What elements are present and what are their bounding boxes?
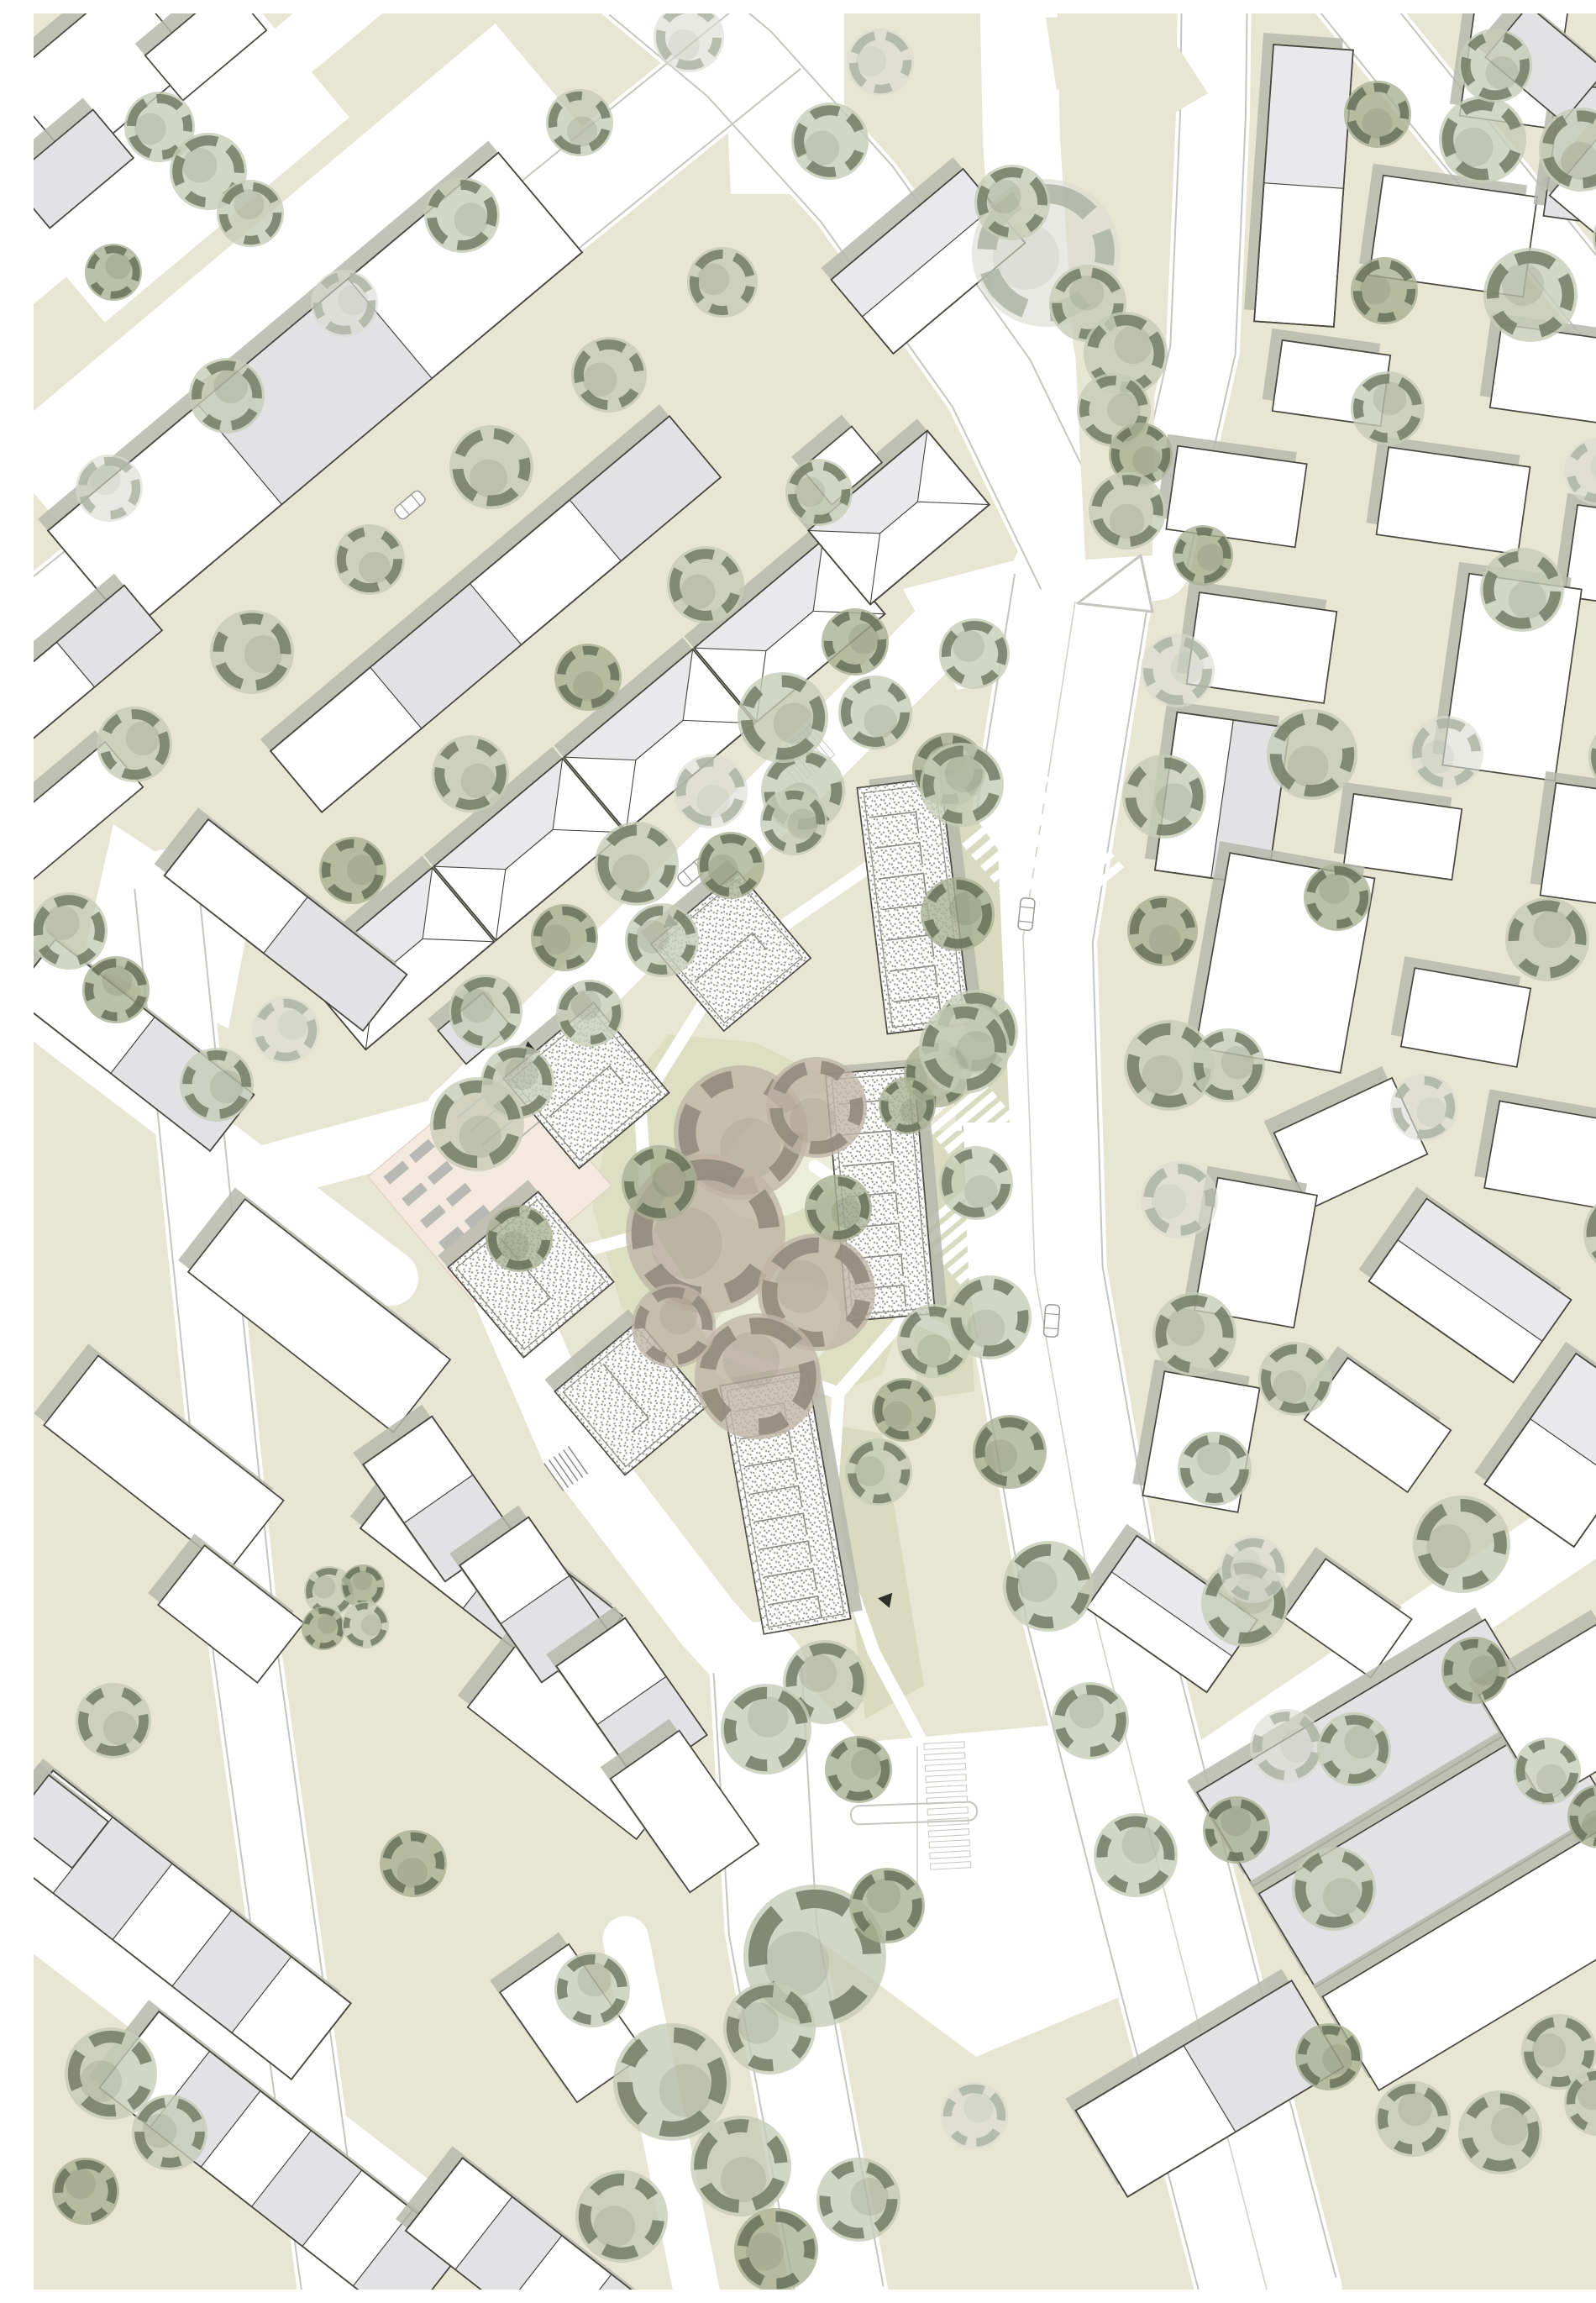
tree-canopy (1483, 248, 1578, 342)
car (1018, 897, 1036, 931)
car-body (1043, 1304, 1060, 1337)
car (1043, 1304, 1060, 1337)
building-footprint (1377, 447, 1530, 555)
tree-inner-shade (126, 722, 160, 756)
site-plan-svg (34, 13, 1596, 2290)
car-body (1018, 897, 1036, 931)
tree-canopy (97, 707, 172, 782)
building (1377, 447, 1530, 555)
tree-inner-shade (1502, 263, 1544, 305)
roof-face (1264, 45, 1353, 188)
site-plan-figure (34, 13, 1596, 2290)
